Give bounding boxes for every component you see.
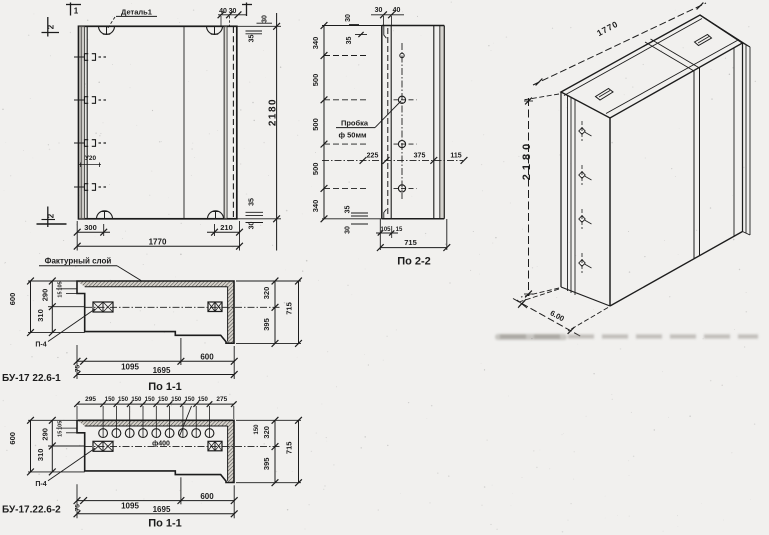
svg-text:2180: 2180 [267, 98, 278, 126]
svg-text:225: 225 [367, 153, 379, 160]
svg-text:310: 310 [36, 449, 45, 462]
svg-text:35: 35 [249, 198, 256, 206]
svg-text:150: 150 [105, 397, 116, 403]
svg-text:375: 375 [414, 153, 426, 160]
svg-text:275: 275 [216, 396, 227, 403]
svg-text:295: 295 [85, 396, 96, 403]
svg-text:715: 715 [285, 442, 294, 455]
svg-text:600: 600 [8, 293, 17, 306]
svg-text:600: 600 [200, 492, 214, 501]
svg-text:105: 105 [58, 421, 64, 430]
svg-text:715: 715 [404, 238, 417, 247]
svg-text:Деталь1: Деталь1 [121, 8, 152, 17]
svg-text:П-4: П-4 [35, 481, 46, 488]
svg-text:1695: 1695 [153, 505, 171, 514]
svg-text:2: 2 [47, 213, 56, 218]
svg-text:210: 210 [220, 223, 233, 232]
svg-text:105: 105 [58, 281, 64, 290]
svg-text:15: 15 [396, 227, 403, 233]
svg-text:По 2-2: По 2-2 [397, 256, 431, 268]
svg-text:35: 35 [249, 35, 256, 43]
svg-text:2180: 2180 [521, 140, 533, 180]
svg-text:1: 1 [74, 7, 79, 16]
svg-text:300: 300 [84, 223, 97, 232]
svg-text:395: 395 [262, 458, 271, 471]
svg-text:БУ-17 22.6-1: БУ-17 22.6-1 [2, 373, 61, 384]
svg-text:500: 500 [311, 74, 320, 87]
svg-text:Пробка: Пробка [341, 119, 369, 128]
svg-text:35: 35 [345, 206, 352, 214]
svg-text:75: 75 [75, 504, 82, 512]
svg-text:Фактурный слой: Фактурный слой [45, 257, 112, 266]
svg-text:715: 715 [285, 302, 294, 315]
svg-text:500: 500 [311, 163, 320, 176]
svg-text:П-4: П-4 [35, 342, 46, 349]
svg-text:30: 30 [262, 15, 269, 23]
svg-text:1695: 1695 [153, 366, 171, 375]
svg-text:15: 15 [58, 431, 64, 437]
svg-text:600: 600 [8, 432, 17, 445]
svg-text:1770: 1770 [149, 238, 167, 247]
svg-text:30: 30 [345, 14, 352, 22]
svg-text:75: 75 [75, 365, 82, 373]
svg-text:340: 340 [311, 37, 320, 50]
svg-text:150: 150 [131, 397, 142, 403]
svg-text:115: 115 [450, 153, 461, 160]
svg-text:290: 290 [41, 289, 50, 302]
svg-text:500: 500 [311, 118, 320, 131]
svg-text:150: 150 [118, 397, 129, 403]
svg-text:1095: 1095 [121, 362, 139, 371]
svg-text:ф 50мм: ф 50мм [338, 131, 367, 140]
svg-text:30: 30 [375, 7, 383, 14]
svg-text:15: 15 [58, 291, 64, 297]
svg-text:БУ-17.22.6-2: БУ-17.22.6-2 [2, 505, 61, 516]
svg-text:40: 40 [219, 8, 227, 15]
svg-text:150: 150 [185, 397, 196, 403]
svg-text:150: 150 [171, 397, 182, 403]
svg-text:ф400: ф400 [152, 441, 170, 448]
svg-text:600: 600 [200, 353, 214, 362]
svg-text:395: 395 [262, 318, 271, 331]
svg-text:340: 340 [311, 200, 320, 213]
svg-text:105: 105 [380, 227, 391, 233]
svg-text:35: 35 [346, 37, 353, 45]
svg-text:320: 320 [262, 287, 271, 300]
svg-text:310: 310 [36, 309, 45, 322]
svg-text:30: 30 [345, 226, 352, 234]
svg-text:150: 150 [158, 397, 169, 403]
svg-text:По 1-1: По 1-1 [148, 381, 182, 393]
svg-text:1095: 1095 [121, 502, 139, 511]
svg-text:У20: У20 [85, 155, 97, 162]
svg-text:150: 150 [145, 397, 156, 403]
svg-text:290: 290 [41, 428, 50, 441]
svg-text:150: 150 [198, 397, 209, 403]
svg-text:2: 2 [47, 24, 56, 29]
svg-text:150: 150 [254, 424, 260, 435]
svg-text:320: 320 [262, 426, 271, 439]
